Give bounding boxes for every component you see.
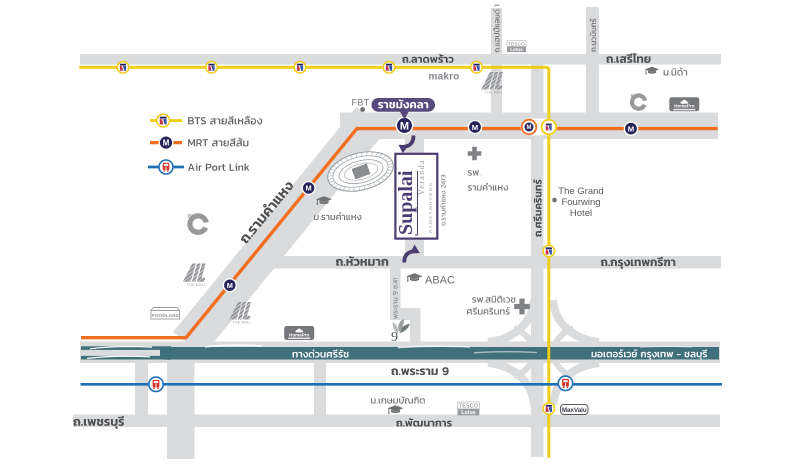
svg-text:MaxValu: MaxValu (562, 407, 587, 414)
svg-text:FBT: FBT (352, 98, 370, 108)
svg-text:M: M (163, 138, 170, 147)
svg-text:M: M (472, 123, 478, 132)
svg-text:Fourwing: Fourwing (561, 197, 600, 208)
svg-text:FOODLAND: FOODLAND (152, 313, 179, 318)
svg-text:The Grand: The Grand (558, 186, 603, 197)
svg-text:THE MALL: THE MALL (233, 321, 252, 325)
svg-text:RAMKAMHAENG: RAMKAMHAENG (428, 182, 433, 233)
svg-text:M: M (306, 184, 312, 193)
svg-text:Supalai: Supalai (395, 170, 417, 235)
svg-text:Veranda: Veranda (417, 159, 426, 195)
svg-text:M: M (628, 124, 634, 133)
svg-text:HomePro: HomePro (674, 104, 695, 109)
svg-text:THE MALL: THE MALL (187, 283, 207, 287)
svg-text:Lotus: Lotus (461, 410, 475, 416)
svg-text:9: 9 (391, 330, 398, 345)
svg-text:TESCO: TESCO (459, 404, 478, 410)
svg-text:M: M (400, 120, 409, 132)
svg-text:THE MALL: THE MALL (485, 91, 504, 95)
svg-text:HomePro: HomePro (289, 332, 310, 337)
svg-text:makro: makro (429, 72, 460, 83)
svg-text:M: M (527, 125, 532, 131)
svg-text:Hotel: Hotel (570, 208, 592, 219)
svg-text:Lotus: Lotus (510, 47, 523, 52)
svg-text:ABAC: ABAC (425, 275, 455, 287)
svg-text:M: M (227, 281, 233, 290)
svg-text:TESCO: TESCO (508, 41, 525, 46)
